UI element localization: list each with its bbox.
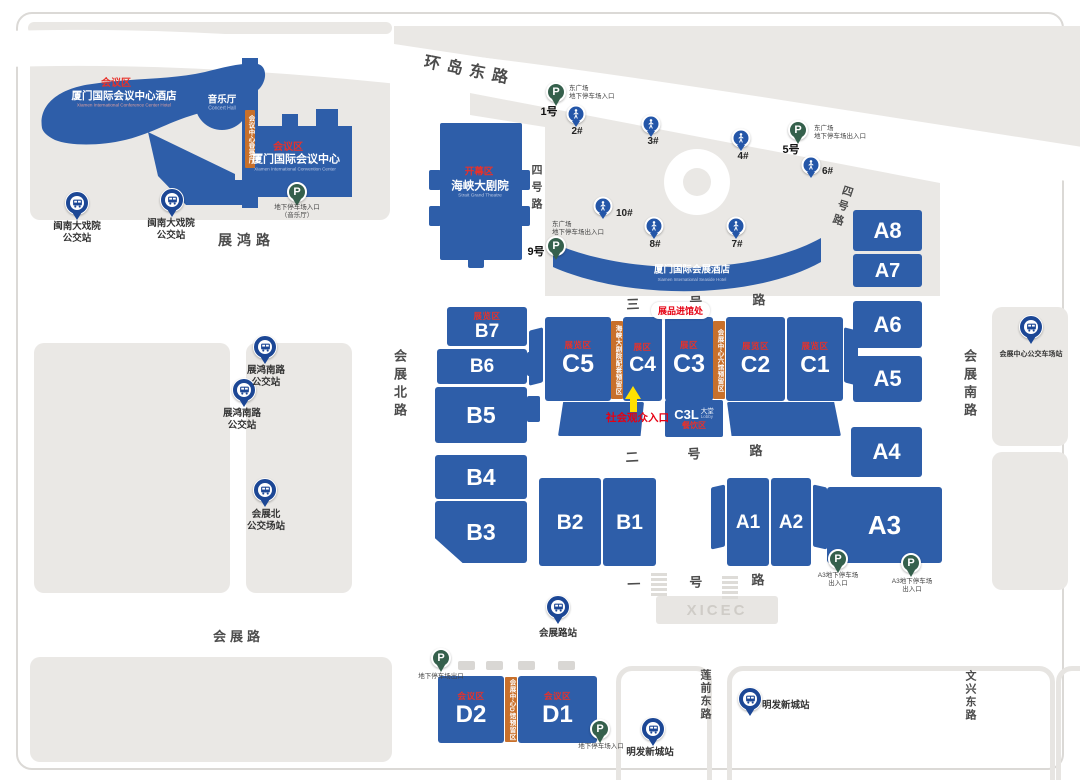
hall-A1: A1 [727, 478, 769, 566]
parking-note-label: 东广场地下停车场出入口 [552, 221, 604, 237]
plaza-center [683, 168, 711, 196]
hall-C3: 展区C3 [665, 317, 713, 401]
hall-name: D2 [456, 703, 487, 727]
convention-zone-label: 会议区 [273, 143, 303, 153]
parking-note-label: 地下停车场出口 [418, 673, 464, 681]
building-block [711, 485, 725, 550]
venue-map: 展品进馆处 社会观众入口 C3L 大堂 Lobby 餐饮区 XICEC 环岛东路… [0, 0, 1080, 780]
theatre-name: 海峡大剧院 [451, 181, 509, 193]
hall-zone-label: 展览区 [801, 342, 828, 351]
seaside-hotel-name: 厦门国际会展酒店 [654, 265, 730, 275]
gate-number-label: 10# [616, 208, 633, 219]
bus-stop-label: 展鸿南路公交站 [223, 408, 261, 433]
crosswalk-stripe [722, 596, 738, 599]
hall-name: A8 [873, 220, 901, 242]
road-label-wenxing-dong-lu: 文兴东路 [962, 670, 978, 722]
theatre-name-en: Strait Grand Theatre [458, 195, 502, 200]
bus-stop-label: 明发新城站 [626, 747, 674, 759]
hall-zone-label: 展览区 [742, 342, 769, 351]
hotel-zone-label: 会议区 [101, 79, 131, 89]
road-label-huizhan-bei-lu: 会展北路 [390, 349, 409, 421]
hall-A7: A7 [853, 254, 922, 287]
gate-number-label: 7# [731, 239, 742, 250]
hall-c3l: C3L 大堂 Lobby 餐饮区 [665, 400, 723, 437]
hall-D1: 会议区D1 [518, 676, 597, 743]
parking-note-label: 地下停车场入口 [578, 743, 624, 751]
c3l-lobby-word: Lobby [701, 415, 713, 420]
parking-number-label: 5号 [782, 141, 799, 157]
hall-name: B4 [466, 466, 495, 489]
building-block [813, 485, 827, 550]
hall-name: A7 [875, 261, 901, 281]
reserved-strip-d-strip: 会展中心D馆预留区 [505, 677, 517, 742]
bus-stop-label: 闽南大戏院公交站 [147, 218, 195, 243]
gate-number-label: 6# [822, 166, 833, 177]
hall-name: C3 [673, 352, 705, 377]
crosswalk-stripe [651, 593, 667, 596]
hall-name: A5 [873, 368, 901, 390]
hall-A4: A4 [851, 427, 922, 477]
hall-name: B1 [616, 512, 643, 533]
c3l-zone-label: 餐饮区 [682, 422, 706, 430]
parking-ramp-mark [486, 661, 503, 670]
road-label-huizhan-lu: 会展路 [213, 626, 264, 645]
gate-number-label: 8# [649, 239, 660, 250]
hall-zone-label: 展览区 [564, 341, 591, 350]
gate-number-label: 2# [571, 126, 582, 137]
hall-B2: B2 [539, 478, 601, 566]
hall-B7: 展览区B7 [447, 307, 527, 346]
theatre-zone-label: 开幕区 [465, 167, 494, 177]
gate-number-label: 3# [647, 136, 658, 147]
hall-name: A6 [873, 314, 901, 336]
building-block [429, 170, 441, 190]
convention-name: 厦门国际会议中心 [252, 155, 340, 166]
parking-note-label: 东广场地下停车场出入口 [814, 125, 866, 141]
concert-hall-en: Concert Hall [208, 107, 236, 112]
hall-name: C2 [741, 353, 770, 376]
parking-note-label: 地下停车场入口（音乐厅） [274, 204, 320, 220]
hall-A6: A6 [853, 301, 922, 348]
hall-name: C1 [800, 353, 829, 376]
hall-zone-label: 会议区 [457, 692, 484, 701]
bus-stop-label: 会展北公交场站 [247, 509, 285, 534]
hall-D2: 会议区D2 [438, 676, 504, 743]
hall-C1: 展览区C1 [787, 317, 843, 401]
c3l-code: C3L [674, 408, 699, 421]
building-block [527, 396, 540, 422]
building-block [429, 206, 441, 226]
goods-entrance-label: 展品进馆处 [651, 302, 710, 319]
hall-name: B6 [470, 357, 494, 376]
hall-B6: B6 [437, 349, 527, 384]
hall-B5: B5 [435, 387, 527, 443]
bus-stop-label: 展鸿南路公交站 [247, 365, 285, 390]
hall-name: A4 [872, 441, 900, 463]
hall-name: C5 [562, 352, 594, 377]
parking-note-label: A3地下停车场出入口 [892, 578, 932, 594]
public-entrance-label: 社会观众入口 [606, 410, 669, 425]
bus-stop-label: 会展路站 [539, 628, 577, 640]
hall-name: B7 [475, 322, 499, 341]
hall-zone-label: 会议区 [544, 692, 571, 701]
hall-C2: 展览区C2 [726, 317, 785, 401]
hall-name: A3 [868, 512, 901, 538]
parking-note-label: A3地下停车场出入口 [818, 572, 858, 588]
hall-name: D1 [542, 703, 573, 727]
hall-name: A2 [779, 513, 803, 532]
reserved-strip-c3-c2-strip: 会展中心六馆预留区 [713, 321, 725, 399]
hall-A5: A5 [853, 356, 922, 402]
road-label-sihao-lu-west: 四号路 [528, 164, 544, 215]
parking-number-label: 1号 [540, 103, 557, 119]
bus-stop-label: 闽南大戏院公交站 [53, 221, 101, 246]
entrance-arrow-stem [630, 398, 637, 412]
parking-ramp-mark [458, 661, 475, 670]
seaside-hotel-en: Xiamen International Seaside Hotel [658, 278, 727, 282]
hall-name: B5 [466, 404, 495, 427]
parking-note-label: 东广场地下停车场入口 [569, 85, 615, 101]
xicec-watermark: XICEC [687, 602, 748, 619]
road-median: XICEC [656, 596, 778, 624]
hall-zone-label: 展区 [680, 341, 698, 350]
reserved-strip-c5-c4-strip: 海峡大剧院配套预留区 [611, 321, 623, 399]
hall-zone-label: 展区 [633, 343, 651, 352]
building-block [468, 256, 484, 268]
hall-name: A1 [736, 513, 760, 532]
hall-name: B2 [557, 512, 584, 533]
hall-B1: B1 [603, 478, 656, 566]
hotel-name-en: Xiamen International Conference Center H… [77, 104, 171, 109]
hotel-name: 厦门国际会议中心酒店 [72, 91, 177, 102]
building-block [727, 402, 841, 436]
hall-A8: A8 [853, 210, 922, 251]
hall-name: B3 [466, 521, 495, 544]
hall-zone-label: 展览区 [473, 312, 500, 321]
hall-A2: A2 [771, 478, 811, 566]
gate-number-label: 4# [737, 151, 748, 162]
building-block [529, 327, 543, 385]
parking-ramp-mark [518, 661, 535, 670]
concert-hall-name: 音乐厅 [208, 95, 237, 105]
hall-B4: B4 [435, 455, 527, 499]
bus-stop-label: 明发新城站 [762, 700, 810, 712]
building-block [233, 180, 258, 205]
convention-name-en: Xiamen International Convention Center [254, 168, 336, 173]
hall-name: C4 [629, 354, 656, 375]
parking-number-label: 9号 [527, 243, 544, 259]
road-label-huizhan-nan-lu: 会展南路 [960, 349, 979, 421]
bus-stop-label: 会展中心公交车场站 [1000, 350, 1063, 359]
hall-C5: 展览区C5 [545, 317, 611, 401]
parking-ramp-mark [558, 661, 575, 670]
road-label-zhanhong-lu: 展鸿路 [218, 230, 275, 250]
crosswalk-stripe [722, 591, 738, 594]
road-label-lianqian-dong-lu: 莲前东路 [697, 669, 713, 721]
